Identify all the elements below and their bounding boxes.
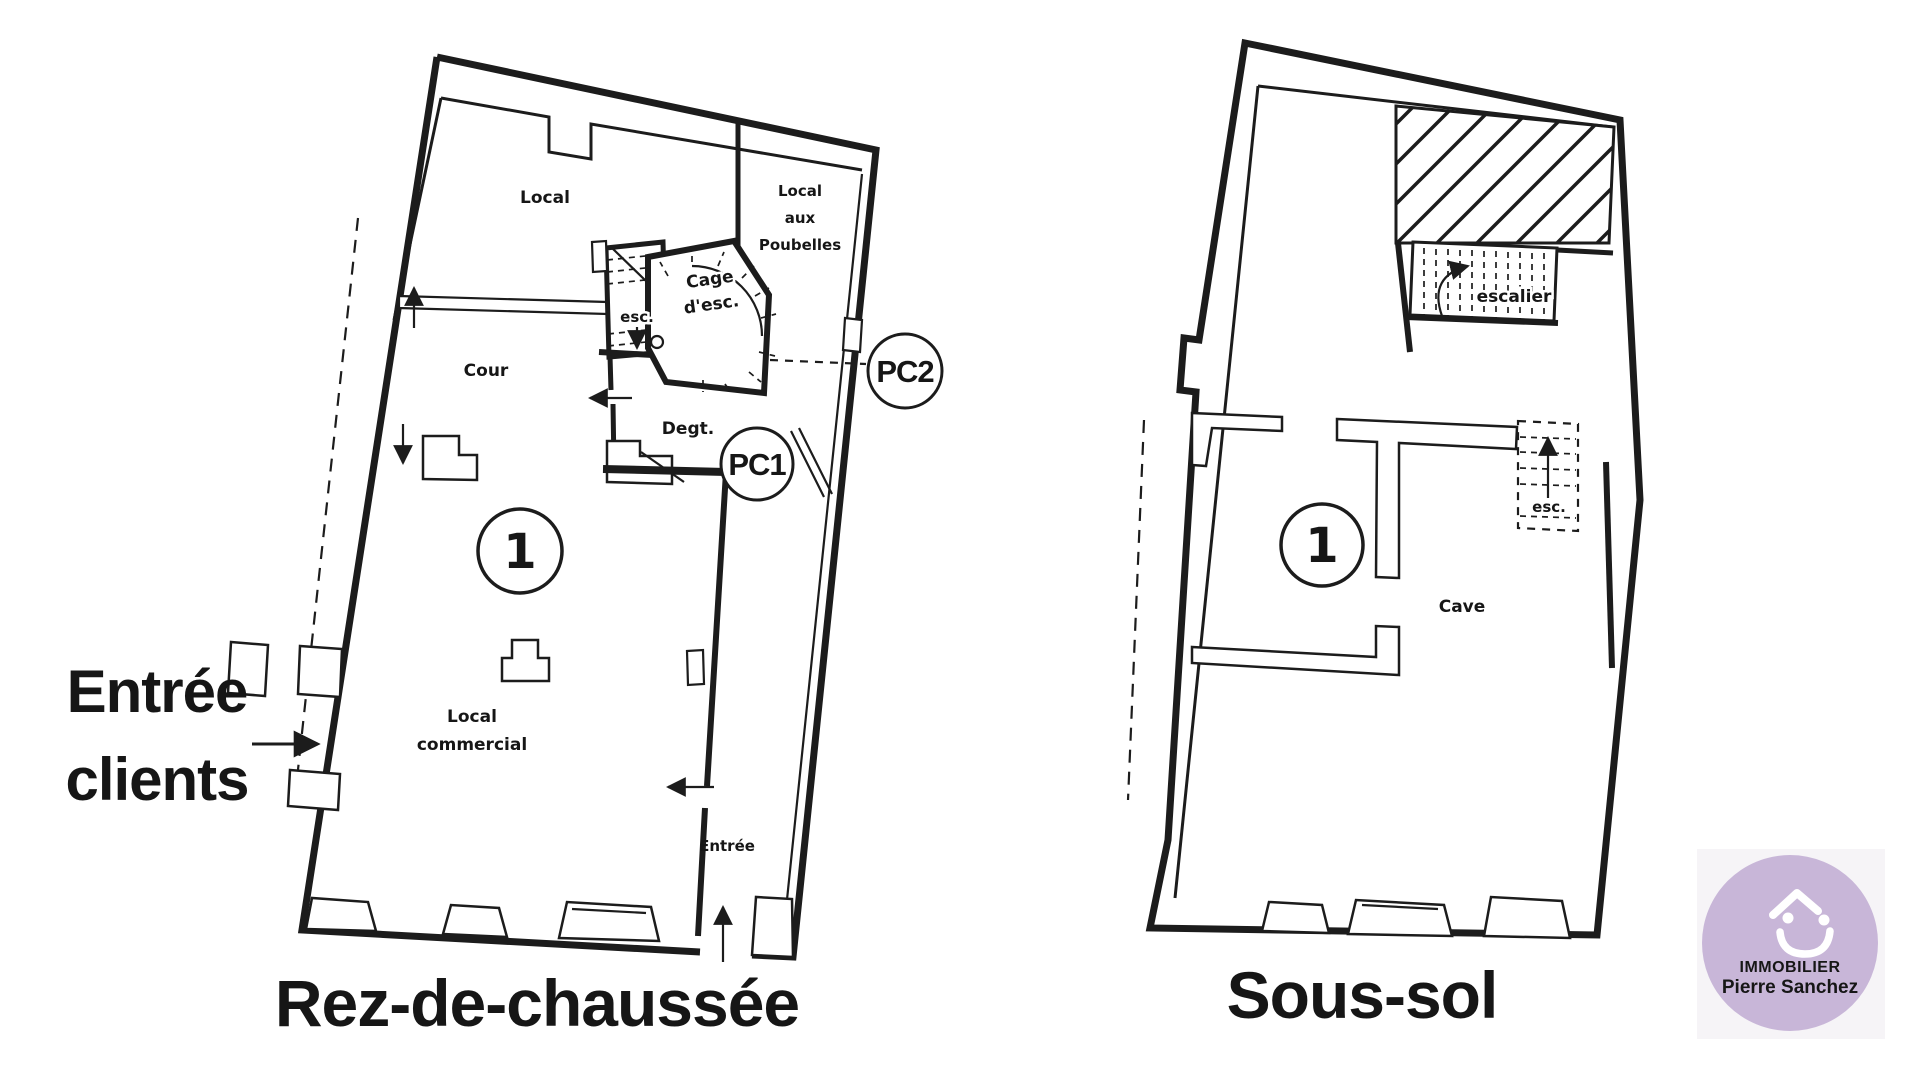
label-cour: Cour xyxy=(464,361,509,381)
unit-1-number: 1 xyxy=(1305,518,1338,574)
unit-1-number: 1 xyxy=(503,524,536,580)
floor-plan-image: PC2 PC1 1 Local Local aux Poubelles Cage… xyxy=(0,0,1920,1081)
logo-circle xyxy=(1702,855,1878,1031)
label-commercial-1: Local xyxy=(447,707,497,727)
label-commercial-2: commercial xyxy=(417,735,527,755)
entree-clients-line1: Entrée xyxy=(67,658,248,725)
label-poubelles-2: aux xyxy=(785,209,816,227)
shopfront-windows xyxy=(306,897,793,957)
corridor-wall xyxy=(698,472,726,936)
stair-cage xyxy=(648,241,769,393)
bottom-l-wall xyxy=(1192,626,1399,675)
logo-line2: Pierre Sanchez xyxy=(1722,977,1858,998)
fixture-shape xyxy=(502,640,549,681)
label-poubelles-1: Local xyxy=(778,182,822,200)
left-stub-wall xyxy=(1192,413,1282,466)
right-wall-window xyxy=(843,318,862,352)
label-degt: Degt. xyxy=(662,419,714,439)
basement-windows xyxy=(1262,897,1570,938)
label-local: Local xyxy=(520,188,570,208)
agency-logo: IMMOBILIER Pierre Sanchez xyxy=(1697,849,1885,1039)
property-line-dashed xyxy=(1128,420,1144,800)
pc2-label: PC2 xyxy=(876,354,933,389)
corridor-top-wall xyxy=(603,469,726,472)
ground-floor-title: Rez-de-chaussée xyxy=(275,966,799,1040)
esc-right-wall xyxy=(1606,462,1612,668)
door-diagonal xyxy=(791,428,832,497)
label-poubelles-3: Poubelles xyxy=(759,236,841,254)
hatched-area xyxy=(1396,106,1614,243)
basement-plan: escalier esc. 1 Cave xyxy=(1128,43,1640,938)
inner-right-wall xyxy=(782,174,862,948)
ground-floor-plan: PC2 PC1 1 Local Local aux Poubelles Cage… xyxy=(228,57,942,962)
property-line-dashed xyxy=(296,218,358,788)
inner-left-wall xyxy=(394,98,441,320)
corridor-window xyxy=(687,650,704,685)
label-esc: esc. xyxy=(1532,498,1566,516)
lower-stair-step-shape xyxy=(607,441,672,484)
cour-step-block xyxy=(423,436,477,480)
entree-clients-line2: clients xyxy=(65,746,248,813)
stair-newel-post xyxy=(651,336,663,348)
logo-line1: IMMOBILIER xyxy=(1740,959,1841,976)
stair-right-wall xyxy=(1557,250,1613,253)
entree-clients-note: Entrée clients xyxy=(65,658,318,813)
stair-top-block xyxy=(592,241,607,272)
label-escalier: escalier xyxy=(1477,287,1552,307)
cour-thin-wall xyxy=(399,296,607,314)
basement-title: Sous-sol xyxy=(1227,958,1498,1032)
floor-plans-svg: PC2 PC1 1 Local Local aux Poubelles Cage… xyxy=(0,0,1920,1081)
label-cave: Cave xyxy=(1439,597,1486,617)
stair-column-wall xyxy=(1398,243,1410,352)
label-esc: esc. xyxy=(620,308,654,326)
pc1-label: PC1 xyxy=(728,447,786,482)
t-wall xyxy=(1337,419,1517,578)
label-entree: Entrée xyxy=(699,837,755,855)
